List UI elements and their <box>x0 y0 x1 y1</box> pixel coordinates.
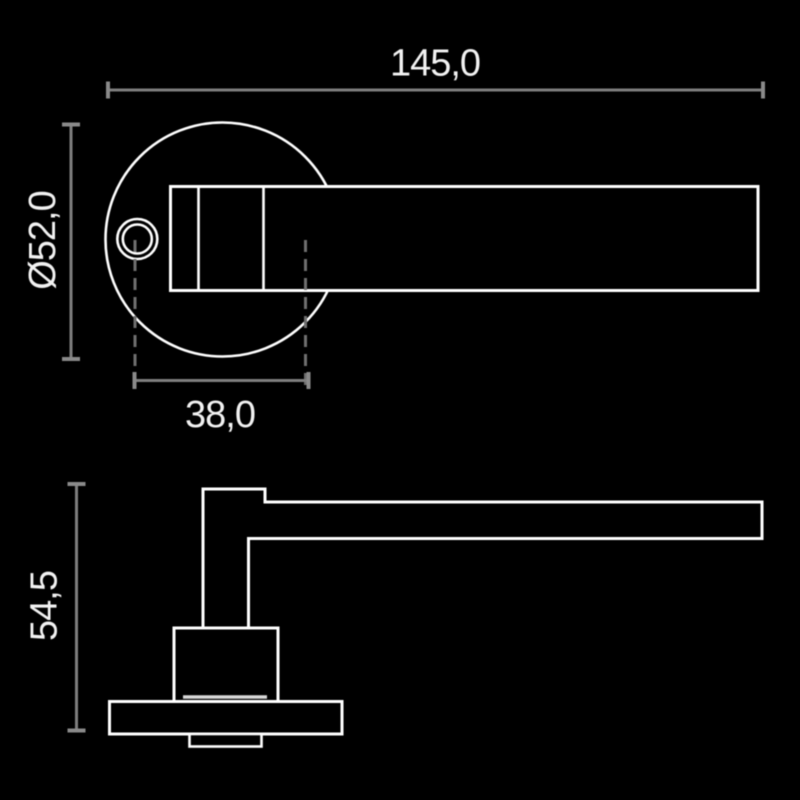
svg-text:54,5: 54,5 <box>24 571 66 641</box>
svg-text:Ø52,0: Ø52,0 <box>22 191 64 290</box>
svg-text:145,0: 145,0 <box>390 43 480 85</box>
svg-text:38,0: 38,0 <box>185 394 255 436</box>
